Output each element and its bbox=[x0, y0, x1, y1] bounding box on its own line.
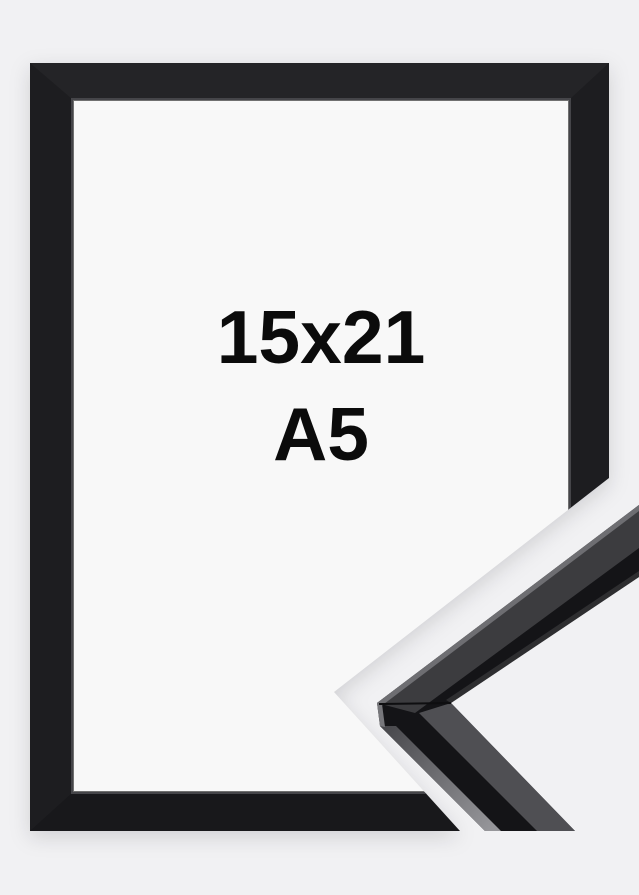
corner-detail-mitre-seam bbox=[379, 703, 451, 704]
corner-detail-upper-edge-highlight bbox=[377, 505, 639, 707]
product-photo: 15x21 A5 bbox=[0, 0, 639, 895]
frame-corner-detail bbox=[330, 440, 639, 831]
size-label-cm: 15x21 bbox=[72, 289, 570, 386]
